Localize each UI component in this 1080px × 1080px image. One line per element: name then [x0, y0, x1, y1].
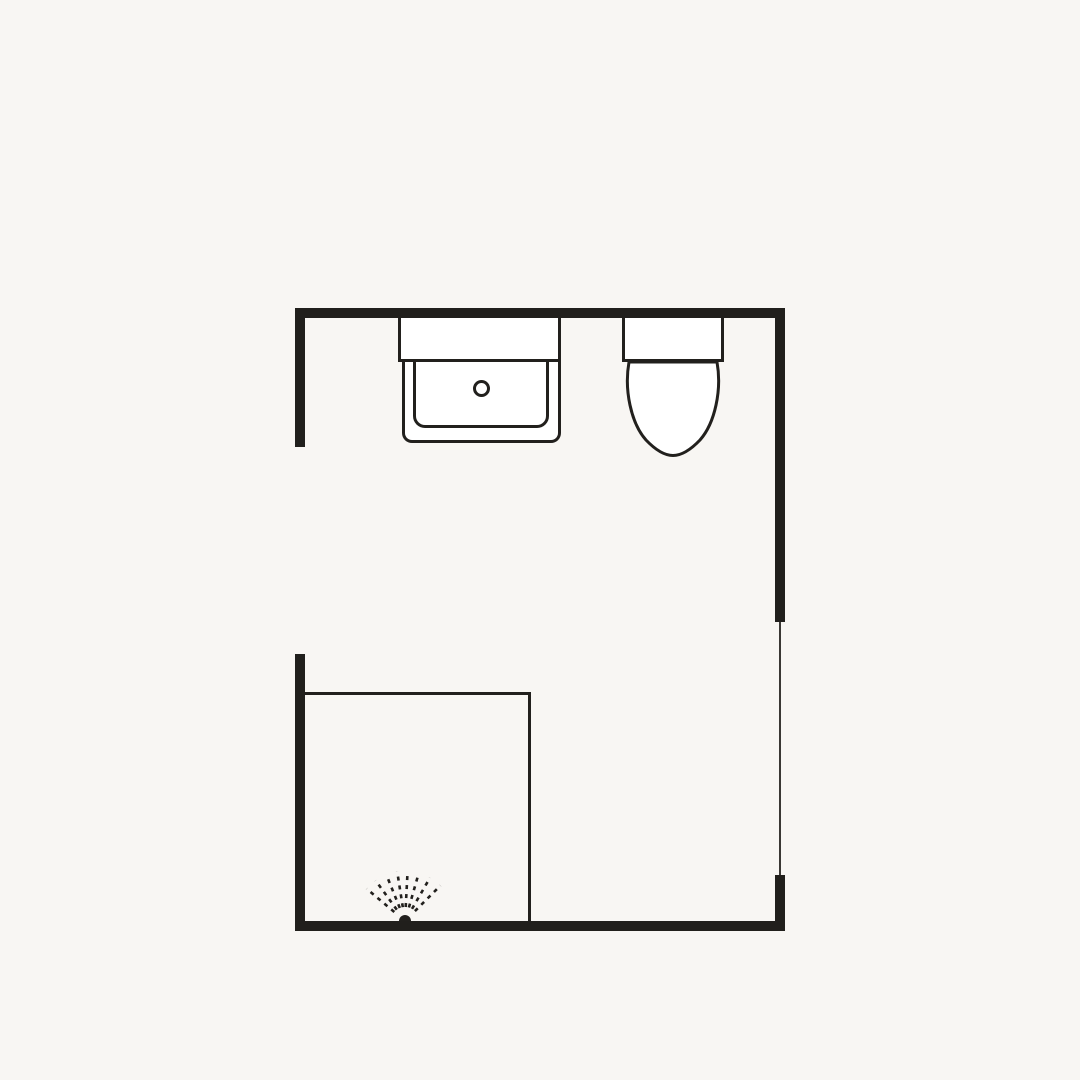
wall-left-upper [295, 308, 305, 447]
bathroom-floor-plan [0, 0, 1080, 1080]
vanity-counter [398, 318, 561, 362]
faucet-hole-icon [473, 380, 490, 397]
shower-spray-icon [348, 859, 462, 921]
toilet-tank [622, 318, 724, 362]
door-opening-line [779, 622, 781, 875]
wall-bottom [295, 921, 785, 931]
toilet-bowl [620, 357, 726, 461]
wall-left-lower [295, 654, 305, 931]
wall-right-upper [775, 308, 785, 622]
wall-top [295, 308, 785, 318]
